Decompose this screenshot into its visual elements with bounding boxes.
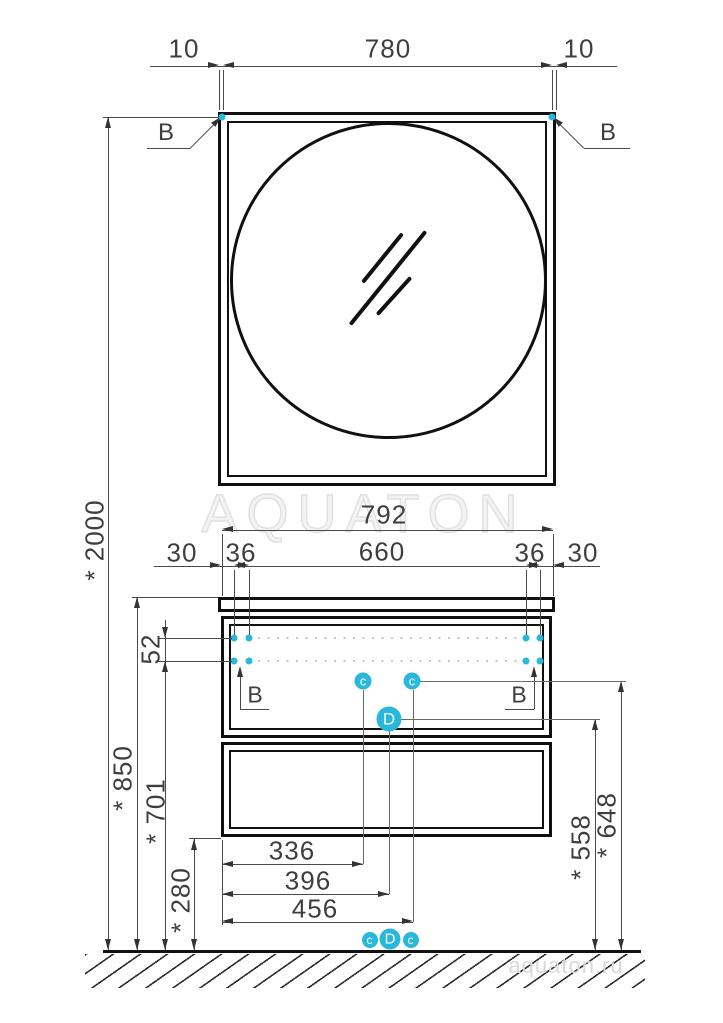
dowel-row-guide <box>258 660 518 662</box>
mount-point-dot <box>549 113 556 120</box>
dim-worktop-height: * 850 <box>108 745 139 811</box>
marker-d-circle: D <box>377 707 402 732</box>
arrow-icon <box>378 891 389 897</box>
ext-line <box>556 70 557 110</box>
arrow-icon <box>531 666 537 677</box>
dowel-label-left: B <box>247 682 262 709</box>
dim-dowel-row-height: * 701 <box>141 778 172 844</box>
ext-line-dowel <box>540 570 541 635</box>
arrow-icon <box>222 891 233 897</box>
arrow-icon <box>352 861 363 867</box>
arrow-icon <box>222 526 233 532</box>
arrow-icon <box>592 939 598 950</box>
ext-line <box>552 70 553 110</box>
marker-line-c2-right <box>420 681 626 682</box>
arrow-icon <box>105 117 111 128</box>
ref-line-worktop <box>132 597 218 598</box>
arrow-icon <box>210 562 221 568</box>
technical-drawing: 10 780 10 B B AQUATON 792 30 36 660 36 3… <box>0 0 723 1023</box>
arrow-icon <box>542 526 553 532</box>
ext-line-dowel <box>249 570 250 635</box>
arrow-icon <box>191 839 197 850</box>
leader-underline <box>584 148 630 149</box>
dowel-dot <box>537 635 544 642</box>
mount-label-right: B <box>600 119 616 147</box>
dim-chain-2: 660 <box>359 537 405 568</box>
leader-underline <box>147 148 190 149</box>
marker-line-c1 <box>363 690 364 864</box>
ext-line <box>222 840 223 925</box>
marker-c-circle: c <box>404 673 421 690</box>
arrow-icon <box>162 939 168 950</box>
dowel-dot <box>522 657 529 664</box>
ref-line-dowel-row2 <box>158 661 232 662</box>
arrow-icon <box>541 62 552 68</box>
arrow-icon <box>222 861 233 867</box>
arrow-icon <box>222 918 233 924</box>
ref-line-mirror-top <box>103 117 218 118</box>
arrow-icon <box>402 918 413 924</box>
dowel-dot <box>522 635 529 642</box>
ref-line-dowel-row1 <box>158 638 232 639</box>
arrow-icon <box>105 939 111 950</box>
arrow-icon <box>191 939 197 950</box>
marker-c-circle: c <box>355 673 372 690</box>
dim-clearance: * 280 <box>166 867 197 933</box>
arrow-icon <box>553 562 564 568</box>
dowel-row-guide <box>258 637 518 639</box>
dim-cabinet-width: 792 <box>361 500 407 531</box>
arrow-icon <box>208 62 219 68</box>
dim-mirror-offset-left: 10 <box>169 34 200 65</box>
dim-dowel-gap: 52 <box>136 634 167 665</box>
dim-mirror-mount-span: 780 <box>365 34 411 65</box>
dim-mirror-offset-right: 10 <box>564 34 595 65</box>
dowel-label-right: B <box>511 682 526 709</box>
marker-line-d-right <box>401 719 600 720</box>
dowel-dot <box>537 657 544 664</box>
marker-c-circle: c <box>403 932 419 948</box>
arrow-icon <box>592 719 598 730</box>
mount-label-left: B <box>158 119 174 147</box>
dim-chain-4: 30 <box>568 538 599 569</box>
ext-line <box>223 70 224 110</box>
arrow-icon <box>134 597 140 608</box>
lower-drawer-inner <box>229 750 544 829</box>
marker-line-d <box>389 731 390 894</box>
leader-underline <box>240 709 269 710</box>
arrow-icon <box>237 666 243 677</box>
dim-offset-c2: 456 <box>292 894 338 925</box>
dim-offset-d: 396 <box>285 866 331 897</box>
arrow-icon <box>223 62 234 68</box>
site-watermark: aquaton.ru <box>508 953 623 979</box>
arrow-icon <box>618 939 624 950</box>
dim-chain-1: 36 <box>226 538 257 569</box>
dim-offset-c1: 336 <box>269 836 315 867</box>
dim-overall-height: * 2000 <box>80 499 111 580</box>
arrow-icon <box>618 681 624 692</box>
countertop <box>218 597 555 612</box>
mount-point-dot <box>219 113 226 120</box>
leader-underline <box>505 709 534 710</box>
arrow-icon <box>134 939 140 950</box>
ext-line <box>219 70 220 110</box>
dim-marker-c-height: * 648 <box>592 792 623 858</box>
dim-chain-3: 36 <box>515 538 546 569</box>
dowel-dot <box>245 635 252 642</box>
marker-line-c2 <box>413 690 414 922</box>
marker-c-circle: c <box>362 932 378 948</box>
marker-d-circle: D <box>380 928 401 949</box>
ext-line-dowel <box>234 570 235 635</box>
dim-chain-0: 30 <box>167 538 198 569</box>
dowel-dot <box>245 657 252 664</box>
ext-line-dowel <box>526 570 527 635</box>
